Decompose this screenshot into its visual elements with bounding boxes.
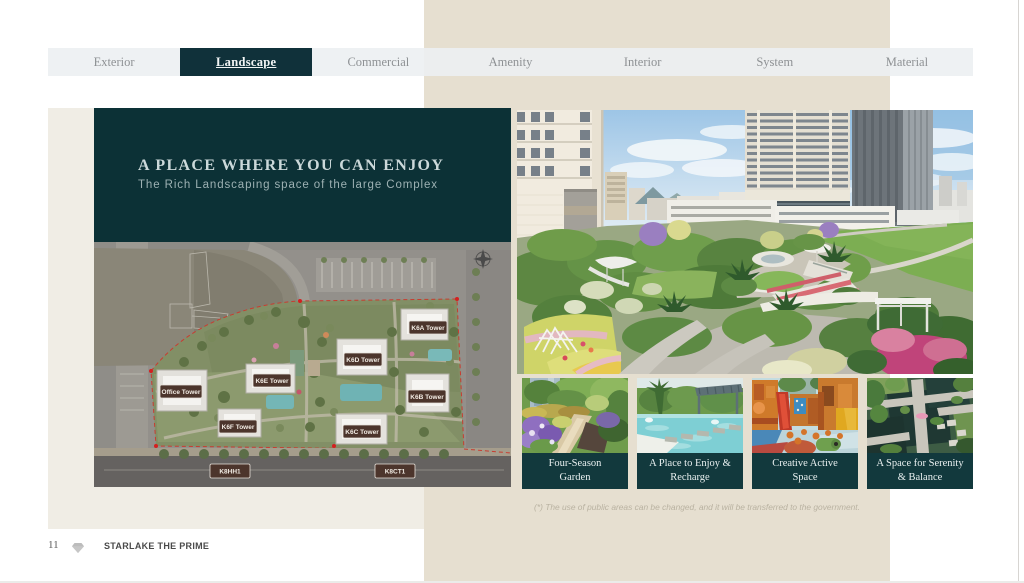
svg-text:K6D Tower: K6D Tower	[346, 357, 380, 364]
svg-text:K6E Tower: K6E Tower	[255, 378, 289, 385]
svg-text:K6B Tower: K6B Tower	[410, 394, 444, 401]
svg-text:K8CT1: K8CT1	[385, 469, 406, 476]
svg-text:K6C Tower: K6C Tower	[345, 429, 379, 436]
svg-text:K8HH1: K8HH1	[219, 469, 241, 476]
svg-text:Office Tower: Office Tower	[162, 389, 201, 396]
svg-text:K6F Tower: K6F Tower	[222, 424, 255, 431]
svg-text:K6A Tower: K6A Tower	[411, 325, 445, 332]
